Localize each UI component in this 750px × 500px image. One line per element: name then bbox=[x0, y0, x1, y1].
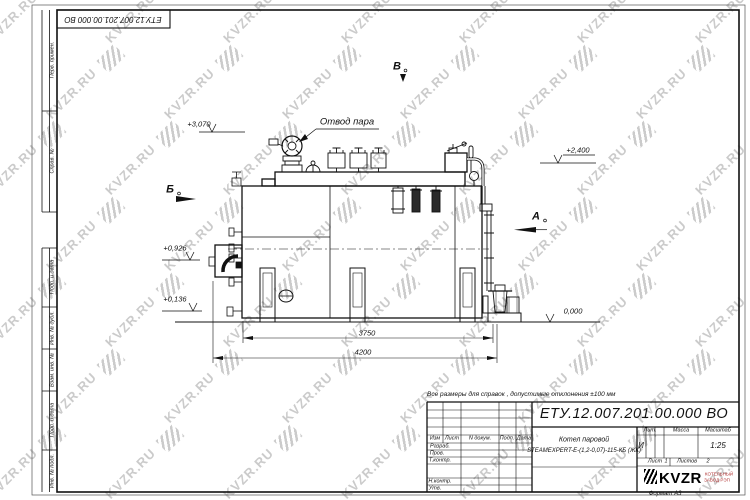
level-0926: +0,926 bbox=[163, 244, 186, 252]
level-3070: +3,070 bbox=[187, 120, 210, 128]
masshtab-value: 1:25 bbox=[710, 442, 726, 450]
product-name-line2: STEAMEXPERT-Е-(1,2-0,07)-115-КБ (ЖК) bbox=[527, 448, 641, 454]
level-2400: +2,400 bbox=[566, 146, 589, 154]
level-0000: 0,000 bbox=[564, 307, 583, 315]
row-t-kontr: Т.контр. bbox=[429, 458, 451, 464]
level-0136: +0,136 bbox=[163, 295, 186, 303]
doc-number: ЕТУ.12.007.201.00.000 ВО bbox=[540, 407, 728, 422]
listov-value: 2 bbox=[706, 459, 709, 465]
view-label-a: А bbox=[532, 212, 540, 223]
steam-outlet-label: Отвод пара bbox=[320, 117, 374, 127]
kvzr-logo-sub2: ЗАВОД РЭП bbox=[704, 478, 730, 483]
col-n-dokum: N докум. bbox=[469, 436, 491, 442]
row-utv: Утв. bbox=[429, 486, 442, 492]
lit-header: Лит. bbox=[644, 428, 657, 434]
row-razrab: Разраб. bbox=[430, 444, 450, 450]
side-col-vzam-inv: Взам. инв. № bbox=[50, 353, 56, 387]
list-label: Лист bbox=[648, 459, 662, 465]
product-name-line1: Котел паровой bbox=[559, 437, 609, 444]
side-col-sprav-no: Справ. № bbox=[50, 149, 56, 174]
view-label-b: Б bbox=[166, 185, 174, 196]
lit-value: И bbox=[638, 442, 644, 450]
col-podp: Подп. bbox=[500, 436, 515, 442]
masshtab-header: Масштаб bbox=[705, 428, 731, 434]
side-col-inv-dubl: Инв. № дубл. bbox=[50, 311, 56, 345]
text-layer: ЕТУ.12.007.201.00.000 ВО Перв. примен. С… bbox=[0, 0, 750, 500]
kvzr-logo-text: KVZR bbox=[659, 470, 702, 487]
side-col-podp-data-2: Подп. и дата bbox=[50, 403, 56, 437]
col-data: Дата bbox=[517, 436, 532, 442]
listov-label: Листов bbox=[677, 459, 697, 465]
col-list: Лист bbox=[445, 436, 459, 442]
side-col-perv-primen: Перв. примен. bbox=[50, 42, 56, 79]
drawing-sheet: KVZR.RUKVZR.RUKVZR.RUKVZR.RUKVZR.RUKVZR.… bbox=[0, 0, 750, 500]
side-col-podp-data-1: Подп. и дата bbox=[50, 260, 56, 294]
row-prov: Пров. bbox=[430, 451, 445, 457]
kvzr-logo-stripes-icon bbox=[644, 469, 657, 484]
kvzr-logo-sub1: КОТЕЛЬНЫЙ bbox=[705, 472, 733, 477]
col-izm: Изм bbox=[430, 436, 440, 442]
format-label: Формат А3 bbox=[649, 491, 682, 497]
massa-header: Масса bbox=[673, 428, 689, 434]
dim-3750: 3750 bbox=[359, 329, 376, 337]
top-doc-number: ЕТУ.12.007.201.00.000 ВО bbox=[64, 15, 161, 23]
general-note: Все размеры для справок , допустимые отк… bbox=[427, 392, 615, 399]
row-n-kontr: Н.контр. bbox=[428, 479, 451, 485]
view-label-v: В bbox=[393, 62, 401, 73]
list-value: 1 bbox=[664, 459, 667, 465]
side-col-inv-podl: Инв. № подл. bbox=[50, 454, 56, 488]
dim-4200: 4200 bbox=[355, 348, 372, 356]
